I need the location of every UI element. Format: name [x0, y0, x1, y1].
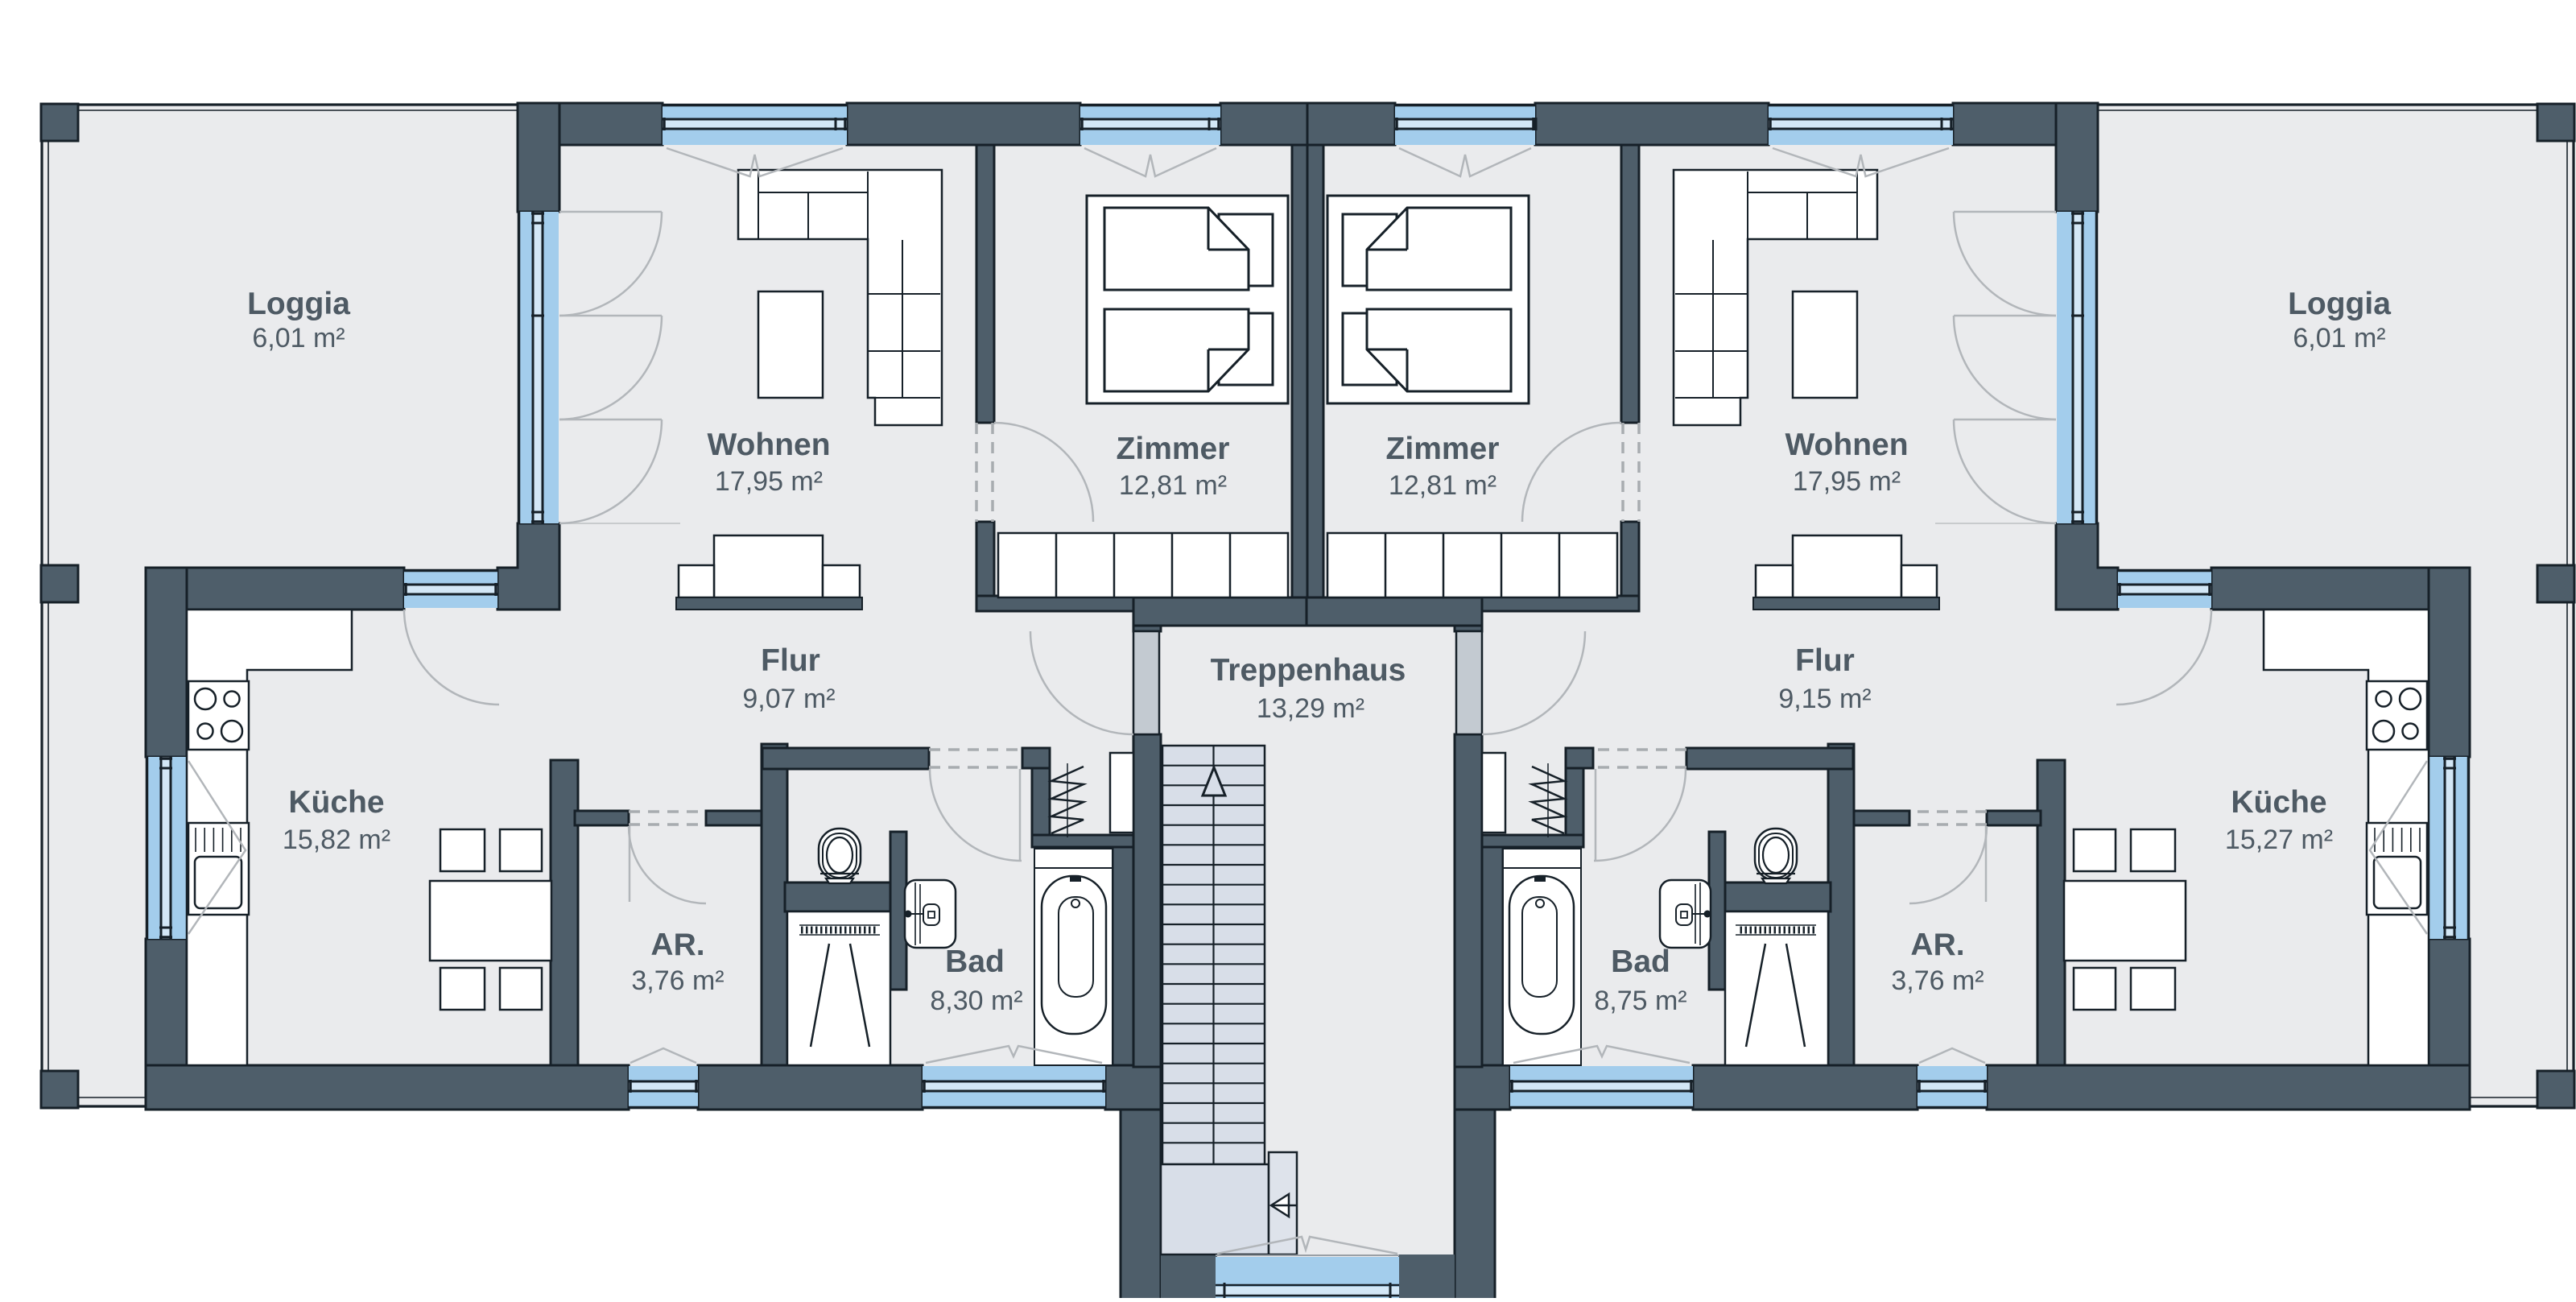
- svg-text:Bad: Bad: [945, 944, 1005, 979]
- svg-text:8,30 m²: 8,30 m²: [930, 986, 1022, 1016]
- svg-text:9,15 m²: 9,15 m²: [1778, 684, 1871, 714]
- svg-text:17,95 m²: 17,95 m²: [1793, 466, 1901, 497]
- svg-text:Wohnen: Wohnen: [1785, 428, 1908, 462]
- svg-text:3,76 m²: 3,76 m²: [1891, 965, 1984, 996]
- svg-text:Loggia: Loggia: [247, 287, 350, 321]
- svg-text:8,75 m²: 8,75 m²: [1594, 986, 1686, 1016]
- svg-text:13,29 m²: 13,29 m²: [1257, 693, 1364, 724]
- svg-text:Wohnen: Wohnen: [707, 428, 830, 462]
- svg-text:15,27 m²: 15,27 m²: [2225, 825, 2333, 855]
- svg-text:12,81 m²: 12,81 m²: [1119, 470, 1227, 501]
- svg-text:Flur: Flur: [1795, 643, 1855, 678]
- svg-text:12,81 m²: 12,81 m²: [1389, 470, 1496, 501]
- svg-text:AR.: AR.: [1910, 928, 1964, 962]
- svg-text:Bad: Bad: [1611, 944, 1670, 979]
- svg-text:15,82 m²: 15,82 m²: [283, 825, 390, 855]
- svg-text:17,95 m²: 17,95 m²: [715, 466, 823, 497]
- svg-text:Zimmer: Zimmer: [1117, 432, 1230, 466]
- svg-text:Küche: Küche: [288, 785, 384, 820]
- svg-text:6,01 m²: 6,01 m²: [252, 323, 345, 353]
- svg-text:AR.: AR.: [650, 928, 704, 962]
- svg-text:9,07 m²: 9,07 m²: [742, 684, 835, 714]
- svg-text:Zimmer: Zimmer: [1386, 432, 1500, 466]
- svg-text:6,01 m²: 6,01 m²: [2293, 323, 2385, 353]
- svg-text:Treppenhaus: Treppenhaus: [1211, 653, 1406, 688]
- svg-text:Küche: Küche: [2231, 785, 2326, 820]
- svg-text:Loggia: Loggia: [2288, 287, 2391, 321]
- svg-text:Flur: Flur: [761, 643, 820, 678]
- svg-text:3,76 m²: 3,76 m²: [631, 965, 724, 996]
